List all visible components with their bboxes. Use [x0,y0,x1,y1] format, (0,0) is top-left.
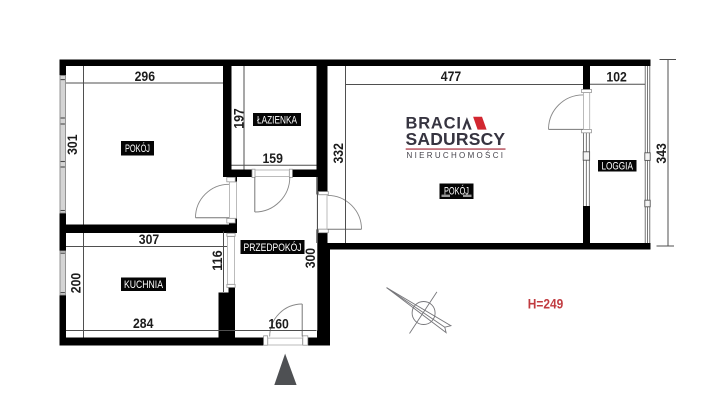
svg-text:PRZEDPOKÓJ: PRZEDPOKÓJ [244,241,302,254]
svg-text:197: 197 [232,108,247,128]
svg-text:SADURSCY: SADURSCY [406,129,506,149]
svg-text:POKÓJ: POKÓJ [125,142,150,155]
svg-text:301: 301 [65,134,80,155]
svg-text:284: 284 [133,316,154,331]
svg-text:102: 102 [606,70,626,85]
svg-text:NIERUCHOMOŚCI: NIERUCHOMOŚCI [407,151,506,160]
svg-text:KUCHNIA: KUCHNIA [124,279,164,291]
svg-text:200: 200 [69,273,84,293]
svg-text:116: 116 [210,250,225,270]
svg-text:LOGGIA: LOGGIA [601,160,633,172]
svg-text:343: 343 [654,143,669,163]
svg-text:332: 332 [331,143,346,163]
svg-text:159: 159 [263,151,283,166]
svg-text:477: 477 [441,69,461,84]
svg-text:300: 300 [303,248,318,268]
svg-text:307: 307 [139,232,159,247]
svg-text:160: 160 [268,317,288,332]
svg-text:H=249: H=249 [528,296,564,312]
svg-text:ŁAZIENKA: ŁAZIENKA [257,114,298,126]
svg-text:296: 296 [135,69,155,84]
